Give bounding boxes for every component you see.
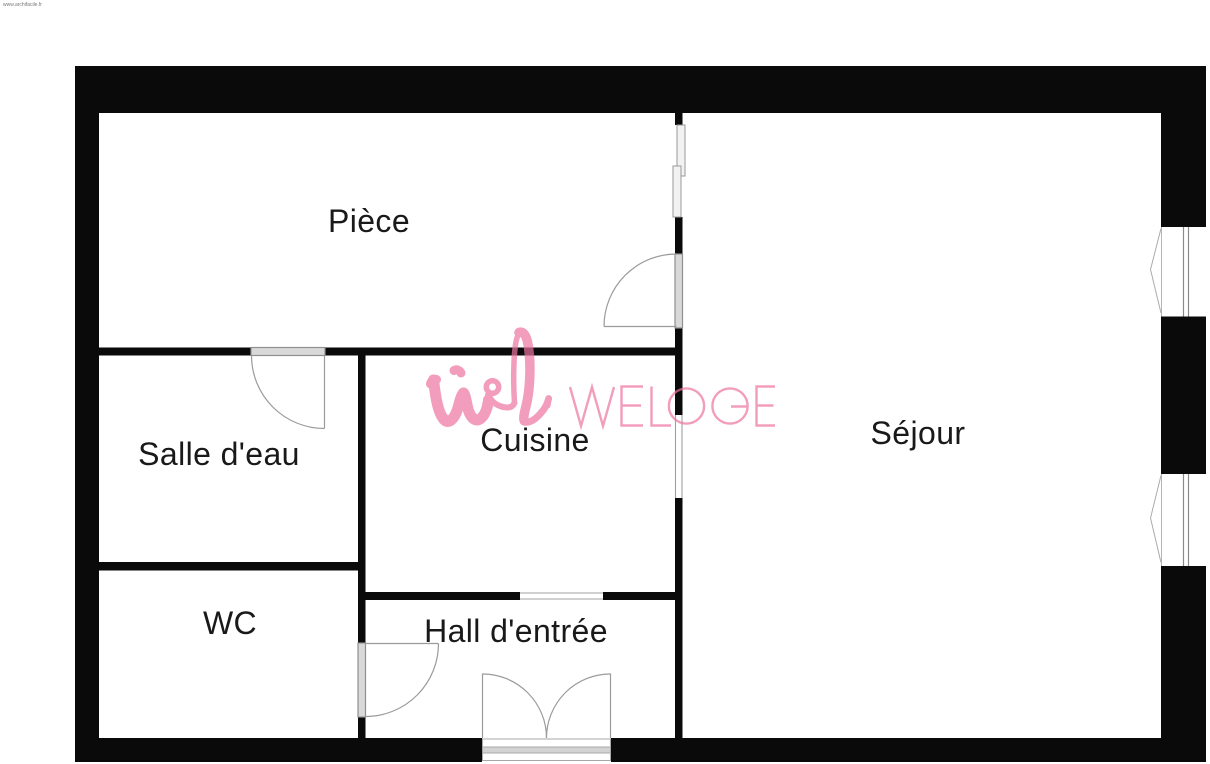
svg-text:Séjour: Séjour <box>871 415 966 451</box>
svg-text:WC: WC <box>203 605 257 641</box>
svg-text:Pièce: Pièce <box>328 203 410 239</box>
svg-text:Hall d'entrée: Hall d'entrée <box>424 613 608 649</box>
svg-text:www.archifacile.fr: www.archifacile.fr <box>3 2 42 8</box>
svg-text:Cuisine: Cuisine <box>480 422 590 458</box>
svg-text:Salle d'eau: Salle d'eau <box>138 436 300 472</box>
